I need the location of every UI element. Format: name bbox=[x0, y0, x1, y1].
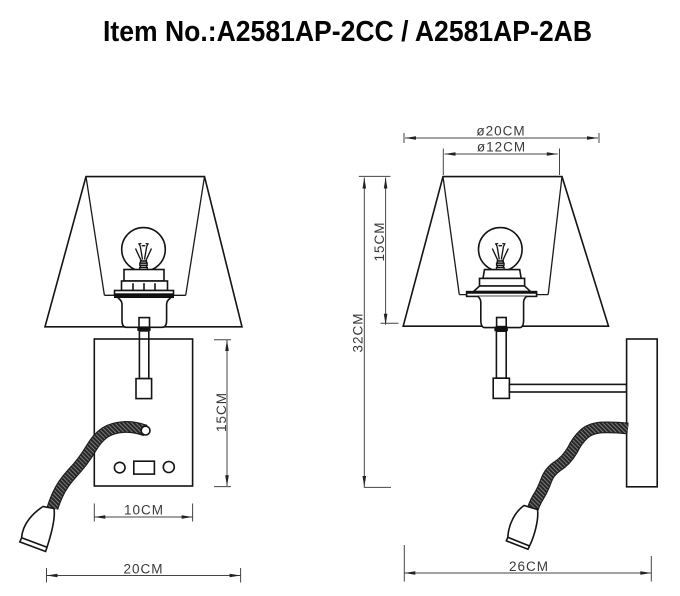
svg-text:20CM: 20CM bbox=[123, 562, 163, 577]
svg-text:15CM: 15CM bbox=[214, 392, 229, 432]
svg-text:32CM: 32CM bbox=[351, 312, 366, 352]
svg-text:10CM: 10CM bbox=[124, 503, 164, 518]
svg-text:Item No.:A2581AP-2CC / A2581AP: Item No.:A2581AP-2CC / A2581AP-2AB bbox=[103, 16, 592, 48]
svg-text:ø12CM: ø12CM bbox=[477, 140, 526, 155]
svg-text:15CM: 15CM bbox=[372, 221, 387, 261]
svg-text:ø20CM: ø20CM bbox=[476, 124, 525, 139]
svg-text:26CM: 26CM bbox=[509, 559, 549, 574]
